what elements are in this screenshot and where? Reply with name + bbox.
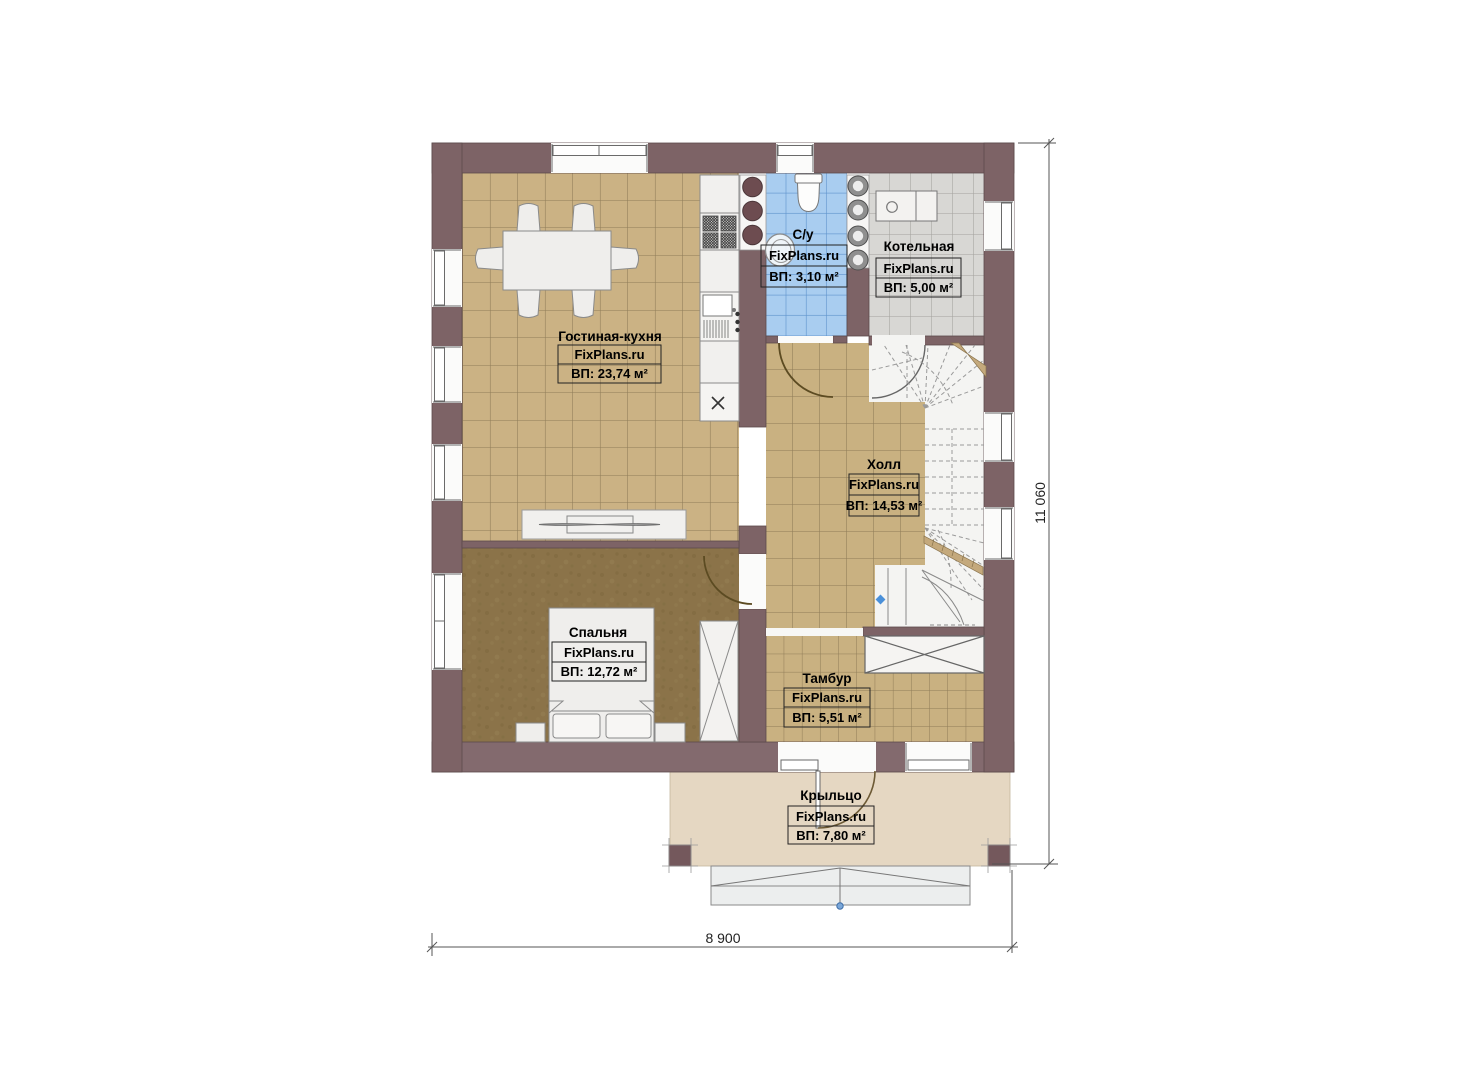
svg-text:Гостиная-кухня: Гостиная-кухня — [558, 329, 661, 344]
svg-text:ВП: 23,74 м²: ВП: 23,74 м² — [571, 366, 648, 381]
svg-text:ВП: 5,51 м²: ВП: 5,51 м² — [792, 710, 862, 725]
svg-text:ВП: 5,00 м²: ВП: 5,00 м² — [884, 280, 954, 295]
svg-text:FixPlans.ru: FixPlans.ru — [849, 477, 919, 492]
svg-text:11 060: 11 060 — [1032, 482, 1048, 524]
svg-text:ВП: 7,80 м²: ВП: 7,80 м² — [796, 828, 866, 843]
svg-text:Котельная: Котельная — [884, 239, 955, 254]
svg-text:Крыльцо: Крыльцо — [800, 788, 861, 803]
svg-text:ВП: 3,10 м²: ВП: 3,10 м² — [769, 269, 839, 284]
svg-text:FixPlans.ru: FixPlans.ru — [883, 261, 953, 276]
svg-text:FixPlans.ru: FixPlans.ru — [564, 645, 634, 660]
svg-text:FixPlans.ru: FixPlans.ru — [796, 809, 866, 824]
svg-text:FixPlans.ru: FixPlans.ru — [769, 248, 839, 263]
svg-text:FixPlans.ru: FixPlans.ru — [792, 690, 862, 705]
svg-text:ВП: 14,53 м²: ВП: 14,53 м² — [846, 498, 923, 513]
svg-text:Тамбур: Тамбур — [803, 671, 852, 686]
svg-text:Спальня: Спальня — [569, 625, 627, 640]
svg-text:ВП: 12,72 м²: ВП: 12,72 м² — [561, 664, 638, 679]
svg-text:С/у: С/у — [792, 227, 814, 242]
svg-text:FixPlans.ru: FixPlans.ru — [574, 347, 644, 362]
svg-text:8 900: 8 900 — [705, 930, 740, 946]
svg-text:Холл: Холл — [867, 457, 901, 472]
